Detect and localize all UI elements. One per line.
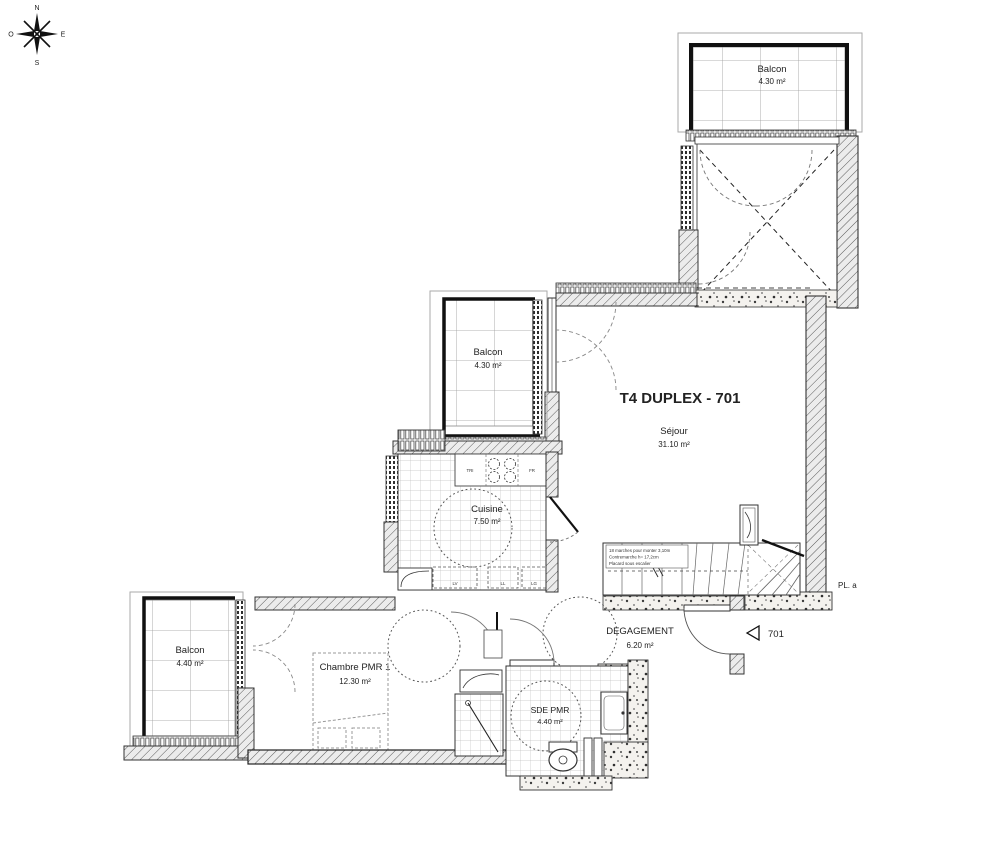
sejour-north-wall [556,293,697,306]
void-east-wall [837,136,858,308]
balcony-left-area: 4.40 m² [176,659,203,668]
degagement-area: 6.20 m² [626,641,653,650]
entrance-wall-bottom [730,654,744,674]
entrance-unit-number: 701 [768,629,784,640]
compass-north-label: N [34,5,39,12]
kitchen-fr-label: FR [529,468,535,473]
balcony-middle: Balcon 4.30 m² [428,291,547,448]
cuisine-window-box [398,430,445,451]
washbasin-icon [601,692,627,734]
kitchen-ll-label: LL [501,581,506,586]
sde-east-wall [628,660,648,744]
cuisine-door-leaf [550,497,578,532]
plan-title: T4 DUPLEX - 701 [620,390,741,407]
cuisine-room: TRI FR LV LL LG Cuisine 7.50 m² [384,430,578,592]
chambre-balcony-door-swing-2 [253,650,295,692]
sejour-east-wall [806,296,826,592]
sejour-balcony-door-swing-2 [556,330,616,390]
void-north-window [695,137,839,144]
balcony-top-right-name: Balcon [757,64,786,75]
vanity-unit [460,670,502,692]
sde-name: SDE PMR [531,705,570,715]
cuisine-name: Cuisine [471,504,503,515]
closet-note: PL. a [838,581,857,590]
stair-note-line2: Contremarche h= 17,2cm [609,555,659,560]
balcony-left-base-wall [124,746,250,760]
kitchen-lv-label: LV [452,581,457,586]
chambre-area: 12.30 m² [339,677,371,686]
sejour-name: Séjour [660,426,687,437]
chambre-turning-circle [388,610,460,682]
balcony-middle-window [533,300,542,434]
cuisine-east-wall-bottom [546,540,558,592]
upper-void-room [679,136,858,308]
balcony-left: Balcon 4.40 m² [124,592,250,760]
sejour-balcony-door-swing-1 [556,302,616,362]
cuisine-area: 7.50 m² [473,517,500,526]
chambre-west-wall [238,688,254,758]
degagement-name: DEGAGEMENT [606,626,674,637]
balcony-left-railing [133,736,243,746]
entrance-door-swing [684,608,730,654]
sejour-north-railing [556,283,696,293]
entrance-door-leaf [684,605,730,611]
cuisine-west-window [386,456,398,522]
balcony-top-right: Balcon 4.30 m² [678,33,862,141]
chambre-name: Chambre PMR 1 [320,662,391,673]
compass-rose-icon: N S E O [8,5,65,67]
chambre-north-wall [255,597,395,610]
sde-south-wall [520,776,612,790]
compass-west-label: O [8,32,14,39]
toilet-icon [549,742,577,771]
kitchen-tri-label: TRI [466,468,473,473]
void-west-window [681,146,693,230]
balcony-middle-name: Balcon [473,347,502,358]
duct-1 [584,738,592,776]
balcony-top-right-area: 4.30 m² [758,77,785,86]
kitchen-lg-label: LG [531,581,537,586]
duct-box [484,630,502,658]
cuisine-west-wall [384,522,398,572]
stair-note-line1: 18 marches pour monter 3,10m [609,548,671,553]
sde-southeast-wall [604,742,648,778]
sde-door-swing [510,619,554,663]
floor-plan-drawing: N S E O Balcon 4.30 m² T4 [0,0,1000,857]
shower-tray [455,694,503,756]
balcony-middle-area: 4.30 m² [474,361,501,370]
sde-door-leaf [510,660,554,666]
sde-area: 4.40 m² [537,717,563,726]
compass-south-label: S [35,60,40,67]
entrance-marker: 701 [747,626,784,640]
entrance-arrow-icon [747,626,759,640]
cuisine-east-wall-top [546,452,558,497]
balcony-left-name: Balcon [175,645,204,656]
staircase: 18 marches pour monter 3,10m Contremarch… [603,505,804,610]
compass-east-label: E [61,32,66,39]
duct-2 [594,738,602,776]
sejour-area: 31.10 m² [658,440,690,449]
stair-note-line3: Placard sous escalier [609,561,651,566]
entrance-wall-top [730,596,744,610]
floor-plan-page: N S E O Balcon 4.30 m² T4 [0,0,1000,857]
